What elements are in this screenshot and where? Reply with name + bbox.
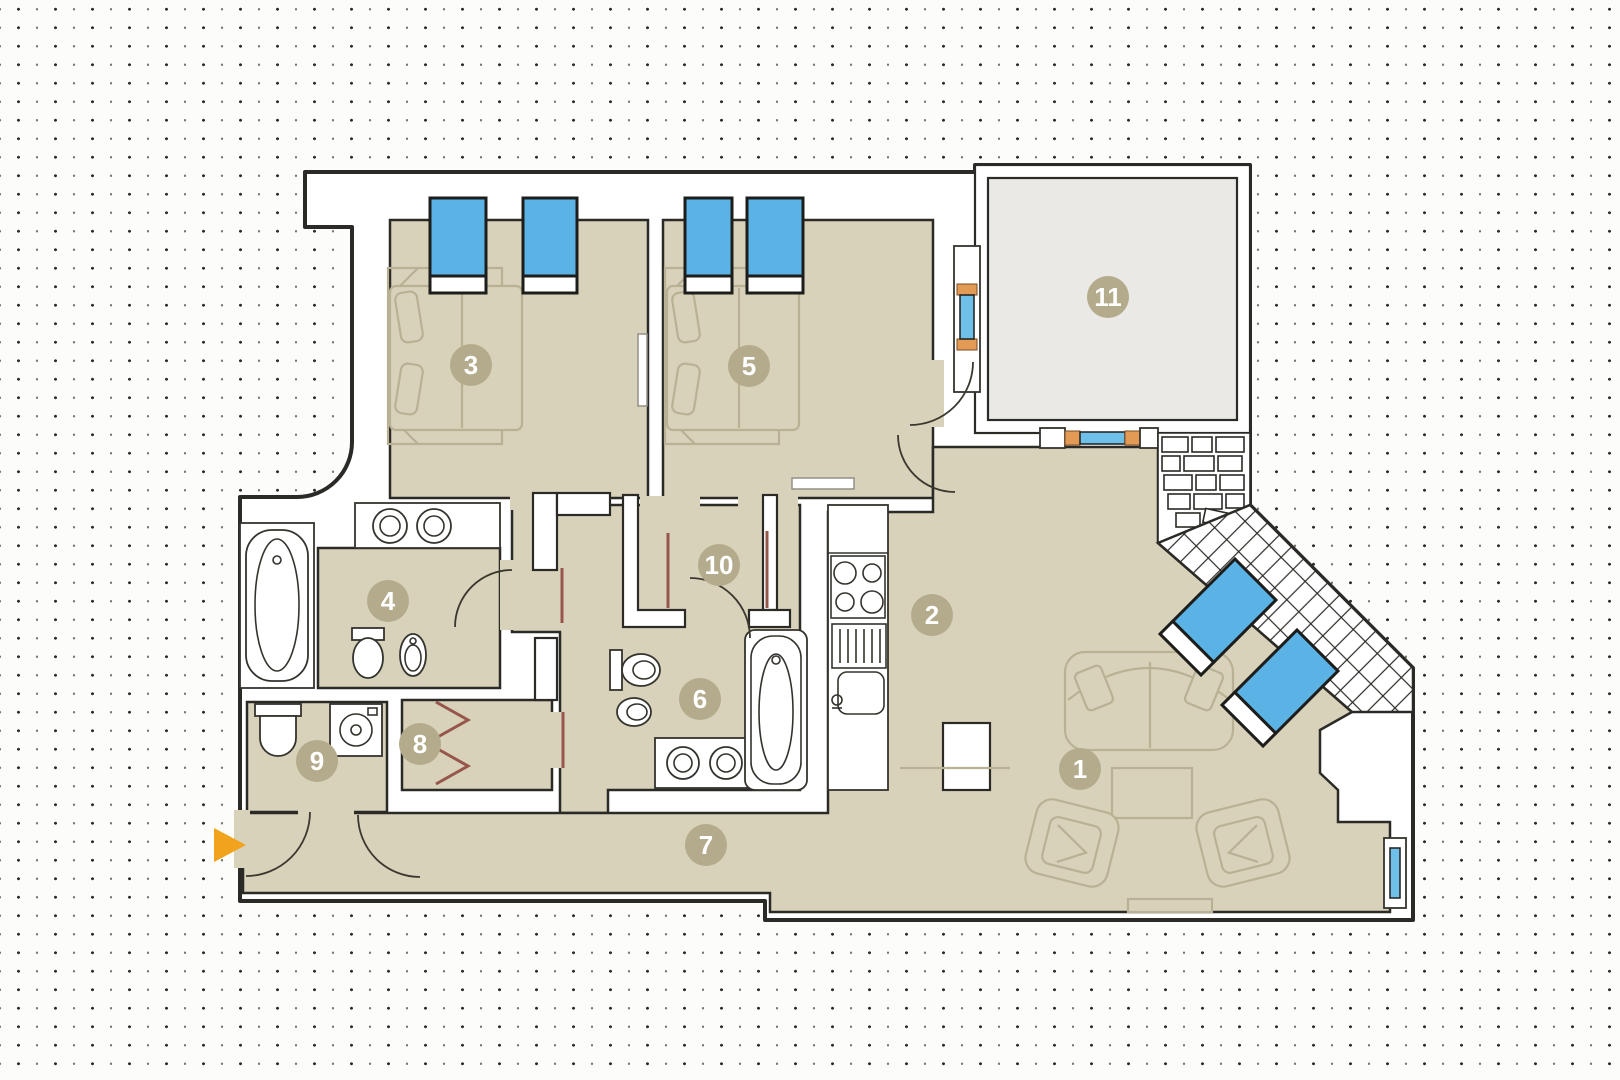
wall-pier [535,638,557,700]
entrance-opening [234,810,250,868]
svg-text:9: 9 [310,746,324,776]
door-opening [550,712,562,768]
sink [373,509,407,543]
door-opening [640,496,700,510]
window-living-right [1384,838,1406,908]
sink [417,509,451,543]
wall-pier [749,610,790,627]
sink [710,747,742,779]
toilet [353,638,383,678]
room-badge-6: 6 [679,678,721,720]
bidet [400,634,426,676]
room-badge-10: 10 [698,544,740,586]
svg-text:3: 3 [464,350,478,380]
sun-lounger [523,198,577,293]
sun-lounger [430,198,486,293]
svg-text:10: 10 [705,550,734,580]
room-badge-2: 2 [911,594,953,636]
tv-console [1128,899,1212,912]
door-opening [510,496,535,510]
room-badge-1: 1 [1059,748,1101,790]
wall-pier [763,495,777,610]
svg-text:5: 5 [742,351,756,381]
room-badge-3: 3 [450,344,492,386]
room-badge-5: 5 [728,345,770,387]
wall-pier [533,493,557,570]
room-badge-11: 11 [1087,276,1129,318]
toilet-tank [610,650,622,690]
sun-lounger [747,198,803,293]
room-badge-4: 4 [367,580,409,622]
sink [667,747,699,779]
pocket-door-slot [792,478,854,489]
svg-text:7: 7 [699,830,713,860]
svg-text:4: 4 [381,586,396,616]
svg-text:11: 11 [1094,282,1122,312]
svg-text:1: 1 [1073,754,1087,784]
sun-lounger [685,198,732,293]
washing-machine [330,704,382,756]
svg-text:8: 8 [413,729,427,759]
svg-text:6: 6 [693,684,707,714]
toilet-tank [255,704,301,716]
floor-plan-page: 1 2 3 4 5 6 7 8 9 10 11 [0,0,1620,1080]
kitchen-unit [828,505,888,790]
room-badge-7: 7 [685,824,727,866]
toilet [260,716,296,756]
svg-text:2: 2 [925,600,939,630]
wall-pier [557,493,610,515]
room-badge-9: 9 [296,740,338,782]
wall-pier [943,723,990,790]
window-room11-left [954,246,980,392]
floor-plan-drawing: 1 2 3 4 5 6 7 8 9 10 11 [0,0,1620,1080]
bidet [617,698,651,726]
room-badge-8: 8 [399,723,441,765]
door-opening [298,790,354,815]
pocket-door-slot [638,334,647,406]
